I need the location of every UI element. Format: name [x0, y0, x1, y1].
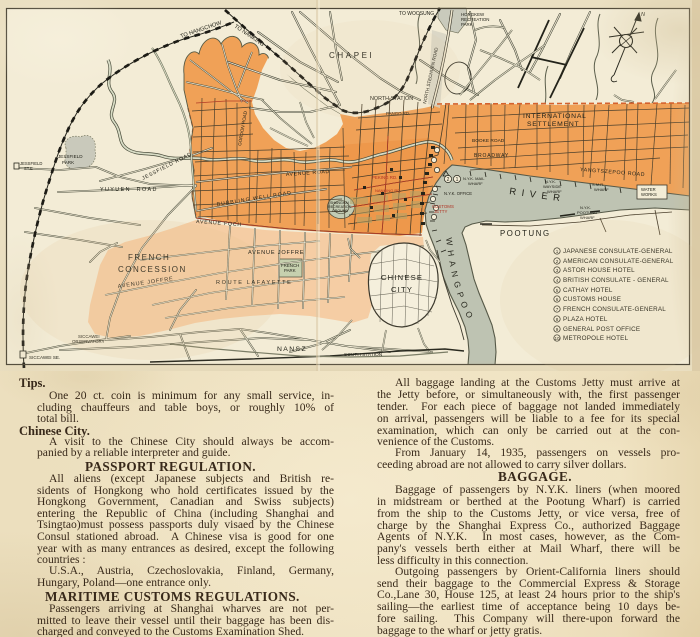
svg-text:INTERNATIONAL: INTERNATIONAL [523, 113, 587, 120]
svg-text:1: 1 [456, 177, 459, 183]
svg-text:SOUTH STATION: SOUTH STATION [344, 352, 383, 358]
svg-text:PARK: PARK [284, 268, 296, 273]
svg-text:WORKS: WORKS [641, 192, 657, 197]
svg-text:WHARF: WHARF [468, 181, 483, 186]
svg-text:CHINESE: CHINESE [381, 273, 423, 282]
svg-text:SETTLEMENT: SETTLEMENT [527, 121, 579, 128]
svg-text:JESSFIELD: JESSFIELD [58, 154, 83, 159]
svg-text:NANKING RD.: NANKING RD. [375, 188, 401, 193]
svg-text:YUYUEN ROAD: YUYUEN ROAD [100, 187, 158, 193]
svg-text:PEKING RD.: PEKING RD. [372, 175, 397, 180]
svg-text:GROUND: GROUND [332, 209, 348, 213]
svg-text:BROADWAY: BROADWAY [474, 153, 509, 159]
svg-text:WHARF: WHARF [547, 189, 562, 194]
svg-text:N.Y.K. OFFICE: N.Y.K. OFFICE [444, 191, 472, 196]
svg-text:ST.E: ST.E [24, 166, 33, 171]
svg-text:JETTY: JETTY [434, 209, 447, 214]
svg-text:TO WOOSUNG: TO WOOSUNG [399, 11, 434, 17]
svg-text:BOOKE ROAD: BOOKE ROAD [472, 138, 505, 144]
svg-text:CITY: CITY [391, 285, 413, 294]
svg-text:PARK: PARK [62, 160, 75, 165]
svg-text:2: 2 [447, 177, 450, 183]
svg-text:WHARF: WHARF [580, 215, 595, 220]
svg-text:PARK: PARK [461, 22, 473, 27]
svg-text:WHARF: WHARF [594, 187, 609, 192]
svg-text:NANSZ: NANSZ [277, 346, 307, 353]
